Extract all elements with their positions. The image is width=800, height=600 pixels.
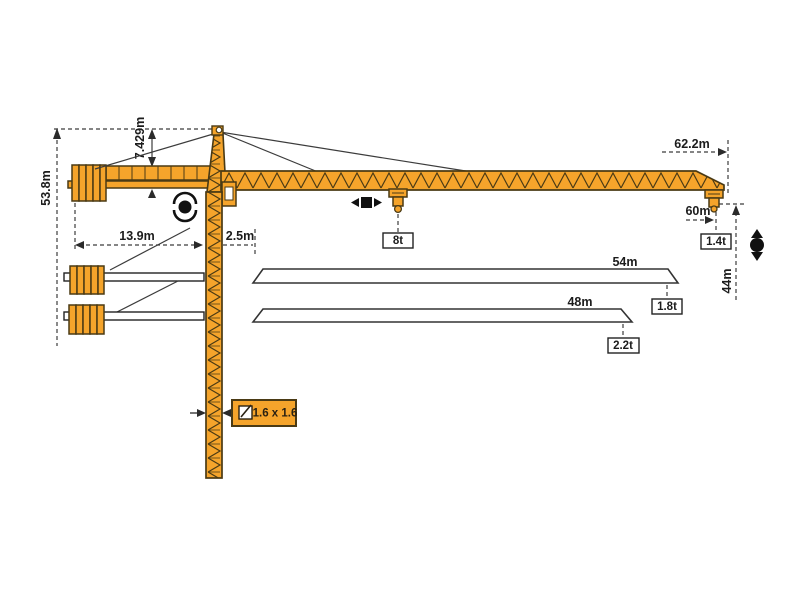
jib48-outline — [253, 309, 632, 322]
hook-height-arrow-up — [732, 205, 740, 215]
section-arrow-right — [197, 409, 206, 417]
counter-radius-arrow-right — [194, 241, 203, 249]
hoist-icon — [750, 229, 764, 261]
slewing-icon — [174, 193, 196, 221]
tip-hook — [711, 206, 717, 212]
jib — [221, 171, 724, 190]
total-height-label: 53.8m — [39, 170, 53, 205]
max-radius-label: 60m — [685, 204, 710, 218]
head-height-label: 7.429m — [133, 117, 147, 159]
mid-trolley: 8t — [383, 189, 413, 248]
counterweight-stack — [72, 165, 106, 201]
mast-cross-section-icon — [239, 405, 252, 419]
total-height-arrow-up — [53, 128, 61, 139]
mid-capacity-label: 8t — [393, 235, 403, 247]
cab-window — [225, 187, 233, 200]
mast-section-label: 1.6 x 1.6 — [253, 408, 298, 420]
beam-underside-arrow — [148, 189, 156, 198]
config-a-weights — [70, 266, 104, 294]
trolley-travel-icon — [351, 197, 382, 208]
config-b-leader — [117, 281, 178, 312]
counter-radius-arrow-left — [75, 241, 84, 249]
crane-diagram-canvas: 53.8m 7.429m 13.9m 2.5m 62.2m 60m 1.4t — [0, 0, 800, 600]
jib48-length-label: 48m — [567, 295, 592, 309]
section-arrow-left — [222, 409, 231, 417]
crane-diagram: 53.8m 7.429m 13.9m 2.5m 62.2m 60m 1.4t — [0, 0, 800, 600]
counter-radius-label: 13.9m — [119, 229, 154, 243]
jib54-outline — [253, 269, 678, 283]
apex-pulley — [216, 127, 222, 133]
hook-height-label: 44m — [720, 268, 734, 293]
jib-config-48m: 48m 2.2t — [253, 295, 639, 353]
root-offset-label: 2.5m — [226, 229, 255, 243]
tip-capacity-label: 1.4t — [706, 236, 726, 248]
mid-hook — [395, 206, 402, 213]
tip-length-label: 62.2m — [674, 137, 709, 151]
tip-length-arrow — [718, 148, 727, 156]
jib48-capacity-label: 2.2t — [613, 340, 633, 352]
jib-config-54m: 54m 1.8t — [253, 255, 682, 314]
head-height-arrow-up — [148, 129, 156, 139]
jib54-capacity-label: 1.8t — [657, 301, 677, 313]
tower-mast — [206, 192, 222, 478]
config-b-weights — [69, 305, 104, 334]
jib54-length-label: 54m — [612, 255, 637, 269]
